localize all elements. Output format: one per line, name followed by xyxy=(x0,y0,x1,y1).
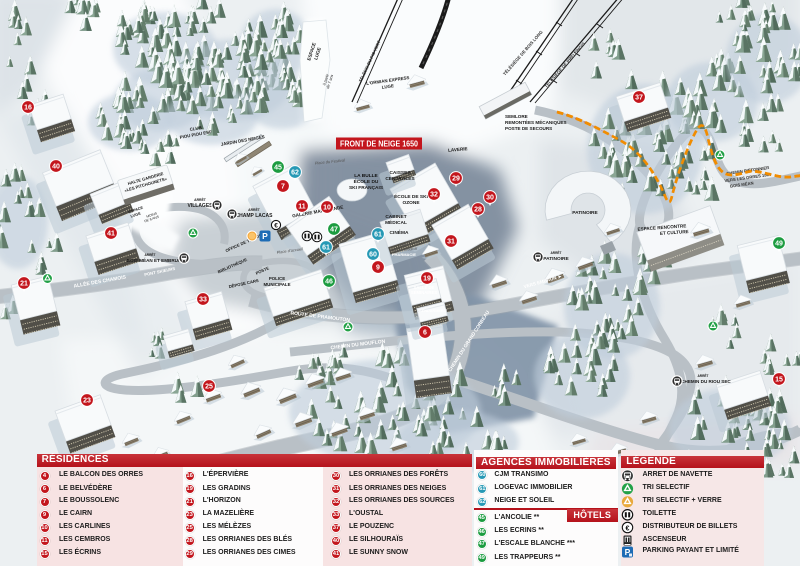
svg-text:40: 40 xyxy=(52,163,60,170)
svg-text:ARRÊT: ARRÊT xyxy=(551,250,562,255)
svg-text:ARRÊT: ARRÊT xyxy=(248,207,261,212)
svg-text:41: 41 xyxy=(107,230,115,237)
svg-text:7: 7 xyxy=(281,183,285,190)
svg-text:29: 29 xyxy=(452,175,460,182)
svg-text:CAISSES: CAISSES xyxy=(389,170,411,176)
svg-text:32: 32 xyxy=(430,191,438,198)
svg-text:POLICE: POLICE xyxy=(269,276,285,281)
svg-text:30: 30 xyxy=(486,194,494,201)
svg-text:VILLAGES: VILLAGES xyxy=(187,203,213,209)
svg-text:OZONE: OZONE xyxy=(402,200,420,206)
svg-text:SEMLORE: SEMLORE xyxy=(505,114,528,119)
svg-text:PHARMACIE: PHARMACIE xyxy=(392,252,417,257)
svg-text:POSTE DE SECOURS: POSTE DE SECOURS xyxy=(505,126,552,131)
svg-text:9: 9 xyxy=(376,264,380,271)
svg-text:BOIS MÉAN ET EMBRUN: BOIS MÉAN ET EMBRUN xyxy=(127,256,182,263)
svg-text:16: 16 xyxy=(24,104,32,111)
svg-text:FRONT DE NEIGE 1650: FRONT DE NEIGE 1650 xyxy=(340,139,418,149)
svg-text:CENTRALES: CENTRALES xyxy=(385,176,415,182)
svg-text:PATINOIRE: PATINOIRE xyxy=(572,210,598,216)
svg-text:€: € xyxy=(274,223,278,230)
svg-text:45: 45 xyxy=(274,164,282,171)
svg-text:19: 19 xyxy=(423,275,431,282)
svg-text:11: 11 xyxy=(298,203,306,210)
svg-text:10: 10 xyxy=(323,204,331,211)
svg-text:46: 46 xyxy=(325,278,333,285)
svg-text:6: 6 xyxy=(423,329,427,336)
svg-text:37: 37 xyxy=(635,94,643,101)
svg-text:31: 31 xyxy=(447,238,455,245)
svg-text:CHEMIN DU RIOU SEC: CHEMIN DU RIOU SEC xyxy=(681,379,731,384)
svg-text:CHAMP LACAS: CHAMP LACAS xyxy=(236,213,274,219)
svg-text:P: P xyxy=(262,231,268,241)
svg-text:GENDARMERIE: GENDARMERIE xyxy=(419,309,448,313)
svg-text:REMONTÉES MÉCANIQUES: REMONTÉES MÉCANIQUES xyxy=(505,118,567,125)
svg-text:25: 25 xyxy=(205,383,213,390)
svg-text:ARRÊT: ARRÊT xyxy=(145,252,156,257)
svg-text:PATINOIRE: PATINOIRE xyxy=(543,256,569,262)
svg-text:49: 49 xyxy=(775,240,783,247)
svg-text:62: 62 xyxy=(291,169,299,176)
svg-text:60: 60 xyxy=(369,251,377,258)
svg-text:CABINET: CABINET xyxy=(385,214,406,220)
svg-text:ARRÊT: ARRÊT xyxy=(194,197,207,202)
svg-text:33: 33 xyxy=(199,296,207,303)
svg-text:23: 23 xyxy=(83,397,91,404)
svg-text:21: 21 xyxy=(20,280,28,287)
svg-text:15: 15 xyxy=(775,376,783,383)
svg-text:61: 61 xyxy=(374,231,382,238)
svg-text:47: 47 xyxy=(330,226,338,233)
svg-text:LA BULLE: LA BULLE xyxy=(354,173,378,179)
svg-text:ARRÊT: ARRÊT xyxy=(698,373,709,378)
svg-text:28: 28 xyxy=(474,206,482,213)
svg-text:61: 61 xyxy=(322,244,330,251)
svg-text:SÉMINAIRES: SÉMINAIRES xyxy=(411,290,437,295)
svg-text:SKI FRANÇAIS: SKI FRANÇAIS xyxy=(349,185,384,191)
svg-text:MUNICIPALE: MUNICIPALE xyxy=(264,282,291,287)
